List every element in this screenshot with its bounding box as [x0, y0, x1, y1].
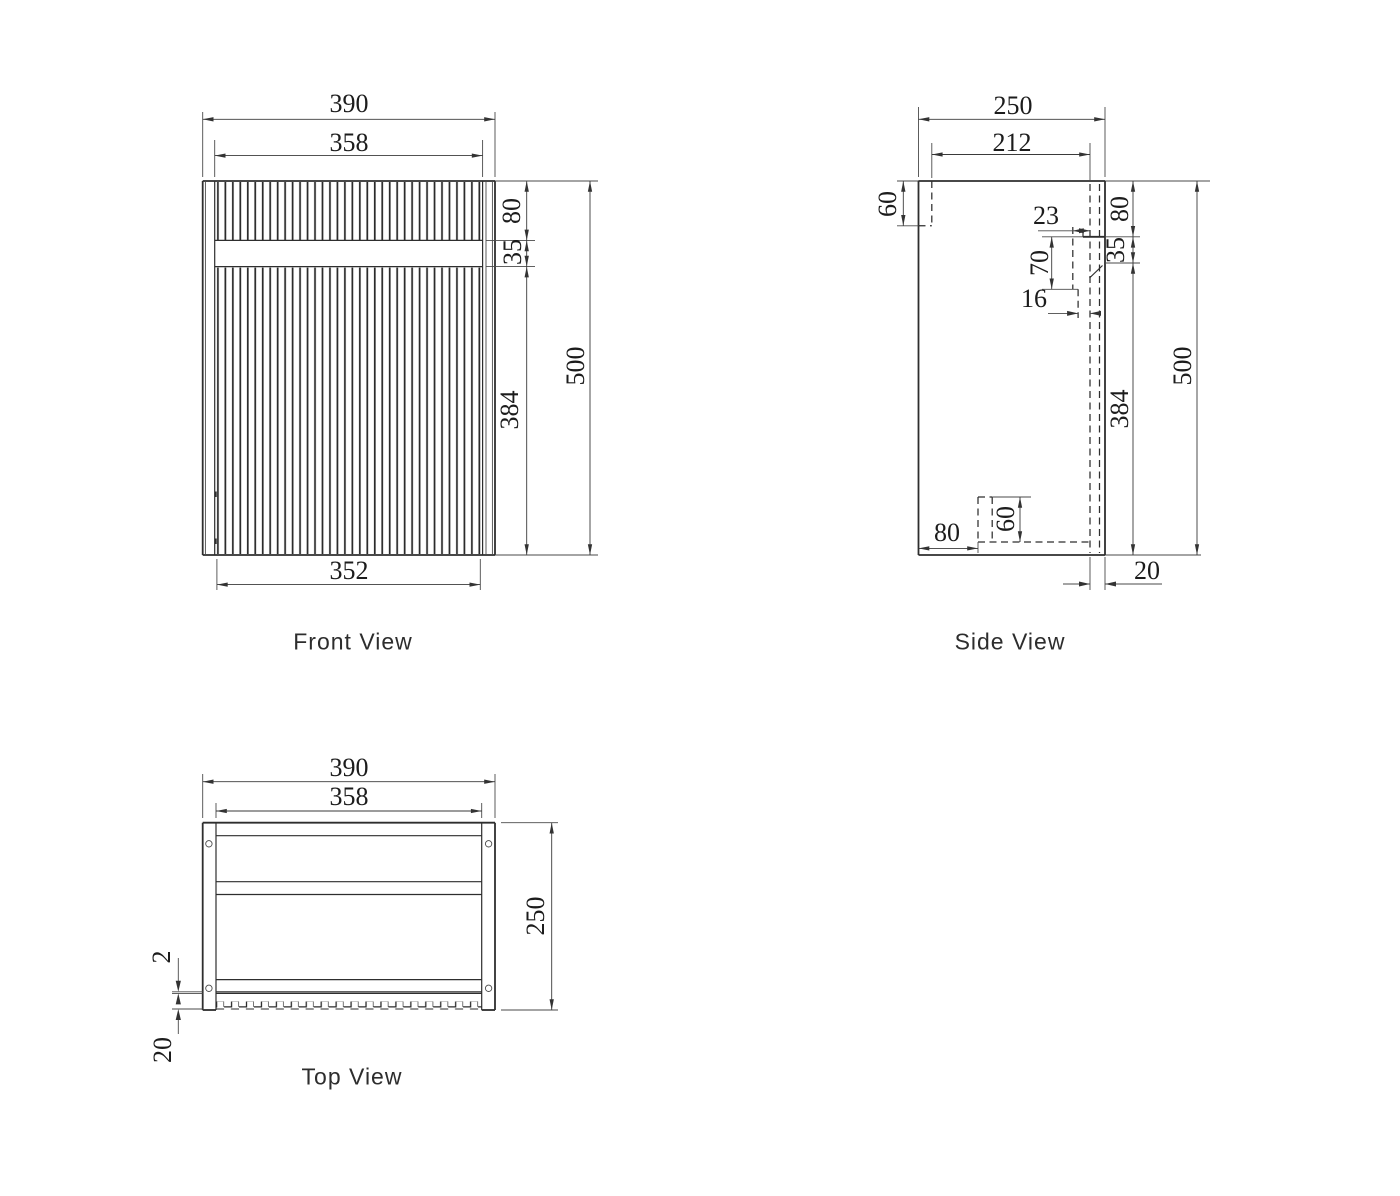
top-view-drawing — [172, 774, 558, 1034]
dim-front-door-width: 358 — [330, 130, 369, 156]
dim-front-door-height: 384 — [497, 391, 523, 430]
dim-front-overall-width: 390 — [330, 91, 369, 117]
dim-front-drawer-height: 80 — [499, 198, 525, 224]
drawing-canvas — [0, 0, 1400, 1196]
dim-side-recess-lip: 16 — [1021, 286, 1047, 312]
dim-top-internal-width: 358 — [330, 784, 369, 810]
technical-drawing-page: 390 358 352 80 35 384 500 Front View 250… — [0, 0, 1400, 1196]
recess-chamfer — [1090, 266, 1103, 279]
dim-side-bottom-rail: 60 — [993, 506, 1019, 532]
dim-top-overall-width: 390 — [330, 755, 369, 781]
dim-front-gap: 35 — [500, 239, 526, 265]
dim-side-door-height: 384 — [1107, 390, 1133, 429]
dim-side-overall-depth: 250 — [994, 93, 1033, 119]
dim-side-drawer-height: 80 — [1107, 196, 1133, 222]
front-door-fluted-panel — [215, 268, 483, 554]
dim-side-overall-height: 500 — [1170, 347, 1196, 386]
dim-side-door-thickness: 20 — [1134, 558, 1160, 584]
dim-top-door-thickness: 20 — [150, 1037, 176, 1063]
front-drawer-fluted-panel — [215, 182, 483, 240]
side-view-label: Side View — [955, 629, 1066, 656]
top-view-label: Top View — [302, 1064, 403, 1091]
dim-side-internal-depth: 212 — [993, 130, 1032, 156]
dim-top-door-gap: 2 — [149, 951, 175, 964]
dim-side-rail-offset: 80 — [934, 520, 960, 546]
dim-side-recess-depth: 23 — [1033, 203, 1059, 229]
dim-side-gap: 35 — [1103, 237, 1129, 263]
front-view-label: Front View — [293, 629, 413, 656]
dim-side-recess-height: 70 — [1027, 250, 1053, 276]
front-view-drawing — [203, 112, 598, 590]
screw-holes — [206, 841, 492, 992]
dim-front-bottom-width: 352 — [330, 558, 369, 584]
dim-top-overall-depth: 250 — [523, 897, 549, 936]
dim-side-top-rail: 60 — [875, 191, 901, 217]
dim-front-overall-height: 500 — [563, 347, 589, 386]
top-dimension-lines — [172, 774, 558, 1034]
top-fluted-front-edge — [216, 1002, 482, 1010]
